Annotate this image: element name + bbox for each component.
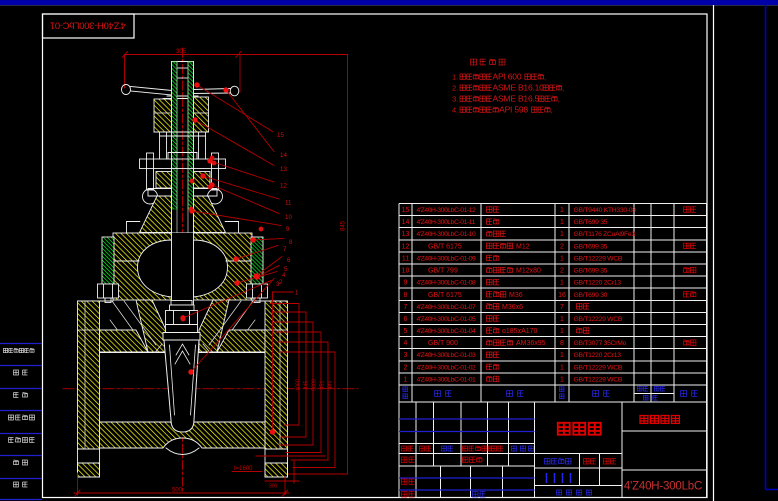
svg-text:GB/T9440 KTH330-08: GB/T9440 KTH330-08 [574, 207, 637, 214]
svg-text:305: 305 [176, 49, 187, 55]
svg-text:4'Z40H-300LbC-01-12: 4'Z40H-300LbC-01-12 [417, 207, 477, 214]
svg-text:,: , [551, 108, 553, 115]
svg-text:5: 5 [404, 328, 408, 335]
svg-text:3: 3 [404, 352, 408, 359]
svg-text:2: 2 [560, 268, 564, 275]
svg-text:GB/T699 35: GB/T699 35 [574, 243, 608, 250]
svg-text:4'Z40H-300LbC: 4'Z40H-300LbC [624, 481, 702, 493]
svg-text:9: 9 [404, 280, 408, 287]
svg-text:7: 7 [560, 304, 564, 311]
svg-text:4: 4 [404, 340, 408, 347]
svg-text:1: 1 [560, 376, 564, 383]
svg-text:451: 451 [320, 381, 326, 390]
svg-text:GB/T12229 WCB: GB/T12229 WCB [574, 316, 623, 323]
svg-text:GB/T1220 2Cr13: GB/T1220 2Cr13 [574, 280, 622, 287]
svg-text:o185xA170: o185xA170 [502, 328, 538, 335]
svg-text:500: 500 [172, 488, 183, 494]
svg-text:10: 10 [402, 268, 410, 275]
svg-text:4'Z40H-300LbC-01-05: 4'Z40H-300LbC-01-05 [417, 316, 477, 323]
svg-text:6: 6 [404, 316, 408, 323]
svg-text:8: 8 [404, 292, 408, 299]
svg-text:445: 445 [304, 381, 310, 390]
svg-text:2.: 2. [452, 84, 458, 93]
svg-text:14: 14 [402, 219, 410, 226]
svg-text:1: 1 [560, 207, 564, 214]
svg-text:1: 1 [560, 219, 564, 226]
svg-text:GB/T12229 WCB: GB/T12229 WCB [574, 255, 623, 262]
svg-text:1: 1 [560, 255, 564, 262]
svg-text:4'Z40H-300LbC-01-01: 4'Z40H-300LbC-01-01 [417, 376, 477, 383]
svg-text:GB/T1176 ZCuAl9Fe3: GB/T1176 ZCuAl9Fe3 [574, 231, 636, 238]
svg-text:11: 11 [285, 200, 292, 207]
svg-text:7: 7 [404, 304, 408, 311]
svg-text:GB/T 6175: GB/T 6175 [428, 243, 462, 250]
svg-text:12: 12 [402, 243, 410, 250]
svg-text:12: 12 [280, 183, 287, 190]
svg-text:1060: 1060 [296, 379, 302, 391]
svg-text:1: 1 [560, 316, 564, 323]
svg-text:10: 10 [285, 214, 292, 221]
svg-text:ASME B16.10: ASME B16.10 [493, 83, 545, 93]
svg-text:4.: 4. [452, 106, 458, 115]
svg-text:GB/T699 35: GB/T699 35 [574, 268, 608, 275]
svg-text:3.: 3. [452, 95, 458, 104]
svg-text:4'Z40H-300LbC-01-08: 4'Z40H-300LbC-01-08 [417, 280, 477, 287]
svg-text:15: 15 [402, 207, 410, 214]
svg-text:GB/T3077 35CrMo: GB/T3077 35CrMo [574, 340, 627, 347]
svg-text:GB/T 799: GB/T 799 [428, 268, 458, 275]
svg-text:1.: 1. [452, 73, 458, 82]
svg-text:1: 1 [295, 290, 299, 297]
svg-text:11: 11 [402, 255, 409, 262]
svg-text:2: 2 [404, 364, 408, 371]
svg-text:API 598: API 598 [499, 105, 528, 115]
svg-text:M36x6: M36x6 [502, 304, 523, 311]
svg-text:5000: 5000 [312, 379, 318, 391]
svg-text:2: 2 [279, 279, 283, 286]
svg-text:4'Z40H-300LbC-01-04: 4'Z40H-300LbC-01-04 [417, 328, 477, 335]
svg-text:M36: M36 [509, 292, 523, 299]
svg-text:8: 8 [560, 340, 564, 347]
svg-text:GB/T1220 2Cr13: GB/T1220 2Cr13 [574, 352, 622, 359]
svg-text:1: 1 [560, 364, 564, 371]
svg-text:1: 1 [560, 352, 564, 359]
svg-text:4'Z40H-300LbC-01-09: 4'Z40H-300LbC-01-09 [417, 255, 477, 262]
svg-text:4'Z40H-300LbC-01-10: 4'Z40H-300LbC-01-10 [417, 231, 477, 238]
svg-text:4'Z40H-300LbC-01-11: 4'Z40H-300LbC-01-11 [417, 219, 476, 226]
svg-text:4'Z40H-300LbC-01: 4'Z40H-300LbC-01 [50, 20, 126, 31]
svg-text:8: 8 [289, 239, 293, 246]
svg-text:6: 6 [287, 257, 291, 264]
svg-text:GB/T12229 WCB: GB/T12229 WCB [574, 376, 623, 383]
svg-text:845: 845 [341, 220, 347, 231]
svg-text:GB/T 900: GB/T 900 [428, 340, 458, 347]
svg-text:485: 485 [328, 381, 334, 390]
svg-text:1: 1 [404, 376, 408, 383]
svg-text:15: 15 [277, 132, 284, 139]
svg-text:4'Z40H-300LbC-01-03: 4'Z40H-300LbC-01-03 [417, 352, 477, 359]
svg-text:GB/T12229 WCB: GB/T12229 WCB [574, 364, 623, 371]
svg-text:13: 13 [402, 231, 410, 238]
svg-text:1: 1 [560, 280, 564, 287]
svg-text:14: 14 [280, 152, 287, 159]
svg-text:M12: M12 [516, 243, 530, 250]
svg-text:16: 16 [558, 292, 566, 299]
svg-text:4'Z40H-300LbC-01-07: 4'Z40H-300LbC-01-07 [417, 304, 477, 311]
svg-text:GB/T 6175: GB/T 6175 [428, 292, 462, 299]
svg-text:4: 4 [282, 272, 286, 279]
svg-text:2: 2 [560, 243, 564, 250]
svg-text:7: 7 [283, 246, 287, 253]
svg-text:GB/T699 30: GB/T699 30 [574, 292, 608, 299]
svg-text:13: 13 [280, 166, 287, 173]
svg-text:,: , [562, 86, 564, 93]
svg-text:9: 9 [286, 226, 290, 233]
svg-text:1: 1 [560, 231, 564, 238]
svg-text:ASME B16.5: ASME B16.5 [493, 94, 540, 104]
svg-text:300: 300 [269, 484, 278, 490]
svg-text:1: 1 [560, 328, 564, 335]
svg-text:,: , [558, 97, 560, 104]
svg-text:4'Z40H-300LbC-01-02: 4'Z40H-300LbC-01-02 [417, 364, 477, 371]
svg-text:,: , [544, 75, 546, 82]
svg-text:API 600: API 600 [493, 72, 522, 82]
svg-text:M12x80: M12x80 [516, 268, 541, 275]
svg-text:AM36x95: AM36x95 [516, 340, 546, 347]
svg-text:GB/T699 35: GB/T699 35 [574, 219, 608, 226]
